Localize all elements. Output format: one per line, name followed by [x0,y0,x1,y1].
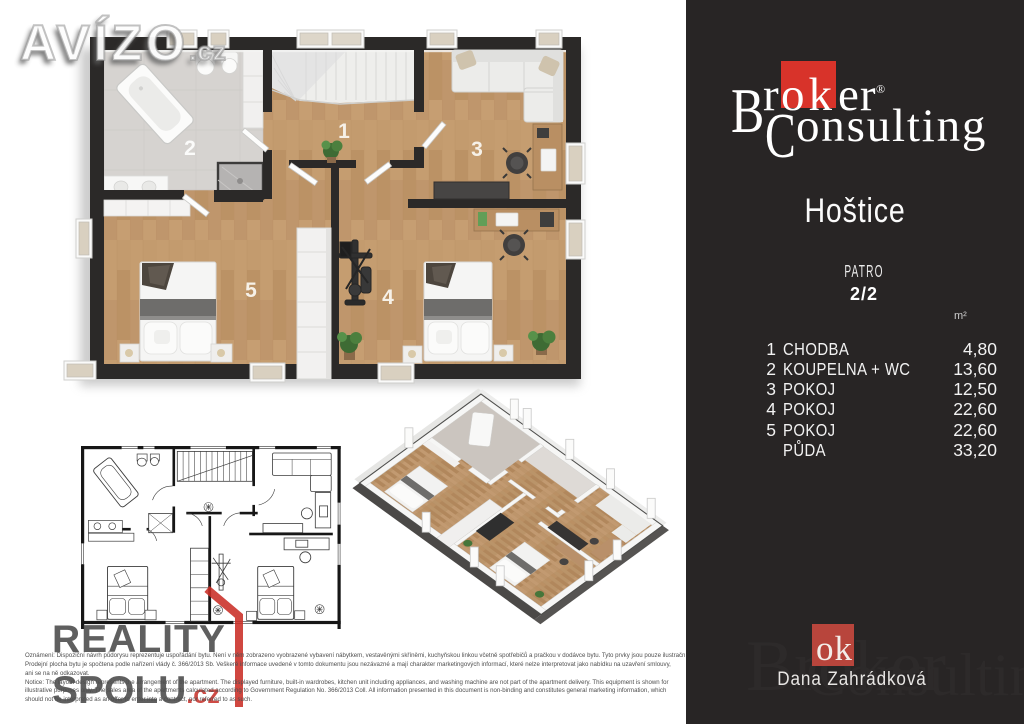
svg-text:1: 1 [338,120,350,143]
svg-text:4: 4 [382,286,394,309]
svg-text:2: 2 [184,137,196,160]
svg-text:5: 5 [245,279,257,302]
svg-text:3: 3 [471,138,483,161]
